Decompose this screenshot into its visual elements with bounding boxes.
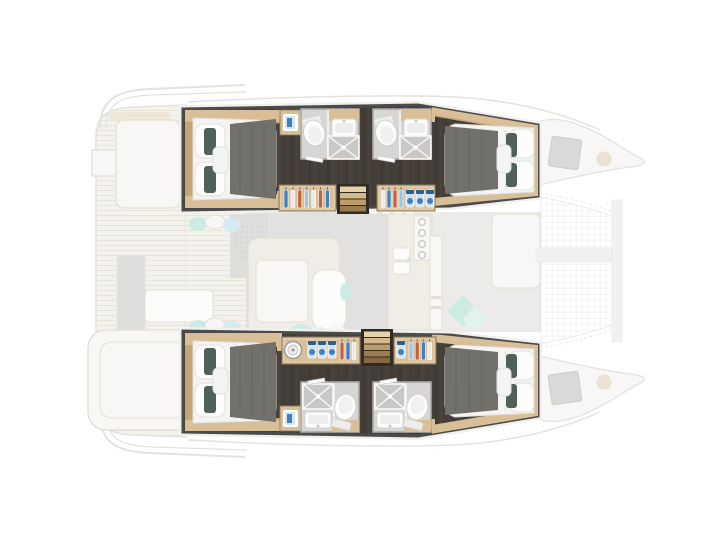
fwd-lounge-rug	[492, 214, 540, 288]
port-bow-hatch	[548, 136, 582, 170]
shower-icon	[303, 384, 333, 409]
hull-port	[183, 105, 539, 214]
galley-fridge	[430, 236, 442, 330]
sink-icon	[332, 119, 356, 136]
saloon-cushion	[340, 283, 352, 301]
saloon-table	[256, 260, 308, 322]
bed-runner	[230, 119, 276, 199]
bed-runner	[445, 126, 498, 194]
double-bed	[445, 124, 534, 196]
trampoline-center-beam	[536, 248, 622, 262]
washer-icon	[285, 342, 302, 359]
floorplan-svg	[0, 0, 720, 540]
saloon-lounge-chair	[312, 270, 346, 330]
stairs-port	[337, 184, 369, 214]
wardrobe-port-fwd	[377, 185, 435, 211]
cockpit-module-center	[145, 290, 213, 322]
cabin-port-aft	[185, 110, 282, 208]
shower-icon	[328, 136, 359, 159]
cockpit-module-port	[116, 120, 180, 208]
seat-cushion-item	[287, 118, 292, 127]
bed-runner	[445, 347, 498, 415]
catamaran-floorplan	[0, 0, 720, 540]
headboard	[185, 347, 193, 418]
wardrobe-stbd-aft	[282, 337, 360, 364]
headboard	[185, 123, 193, 194]
hanger-items	[340, 339, 356, 360]
storage-jars	[406, 190, 434, 207]
bed-runner	[230, 342, 276, 422]
storage-jar	[397, 341, 405, 358]
galley-stove-icon	[414, 216, 430, 260]
head-port-fwd	[372, 109, 431, 162]
stbd-bow-cleat	[597, 375, 611, 389]
seat-cushion-item	[287, 414, 292, 423]
stairs-starboard	[361, 329, 393, 366]
cabin-stbd-aft	[185, 333, 282, 431]
sink-icon	[305, 412, 331, 428]
cabin-door-post-top	[277, 334, 282, 351]
double-bed	[193, 341, 276, 423]
stbd-bow-hatch	[548, 371, 582, 405]
forward-crossbeam	[612, 200, 622, 342]
port-bow-cleat	[597, 152, 611, 166]
storage-jars	[308, 341, 336, 358]
hull-starboard	[183, 329, 539, 436]
seat-port	[280, 110, 301, 135]
trampoline	[536, 193, 622, 348]
double-bed	[193, 118, 276, 200]
double-bed	[445, 345, 534, 417]
seat-starboard	[280, 406, 301, 431]
head-port-aft	[300, 109, 359, 162]
head-stbd-fwd	[373, 378, 431, 432]
wardrobe-stbd-fwd	[394, 337, 436, 364]
cockpit-gray-panel	[117, 256, 145, 338]
wardrobe-port-aft	[279, 185, 336, 211]
port-side-hatch	[92, 150, 118, 176]
head-stbd-aft	[301, 378, 359, 432]
